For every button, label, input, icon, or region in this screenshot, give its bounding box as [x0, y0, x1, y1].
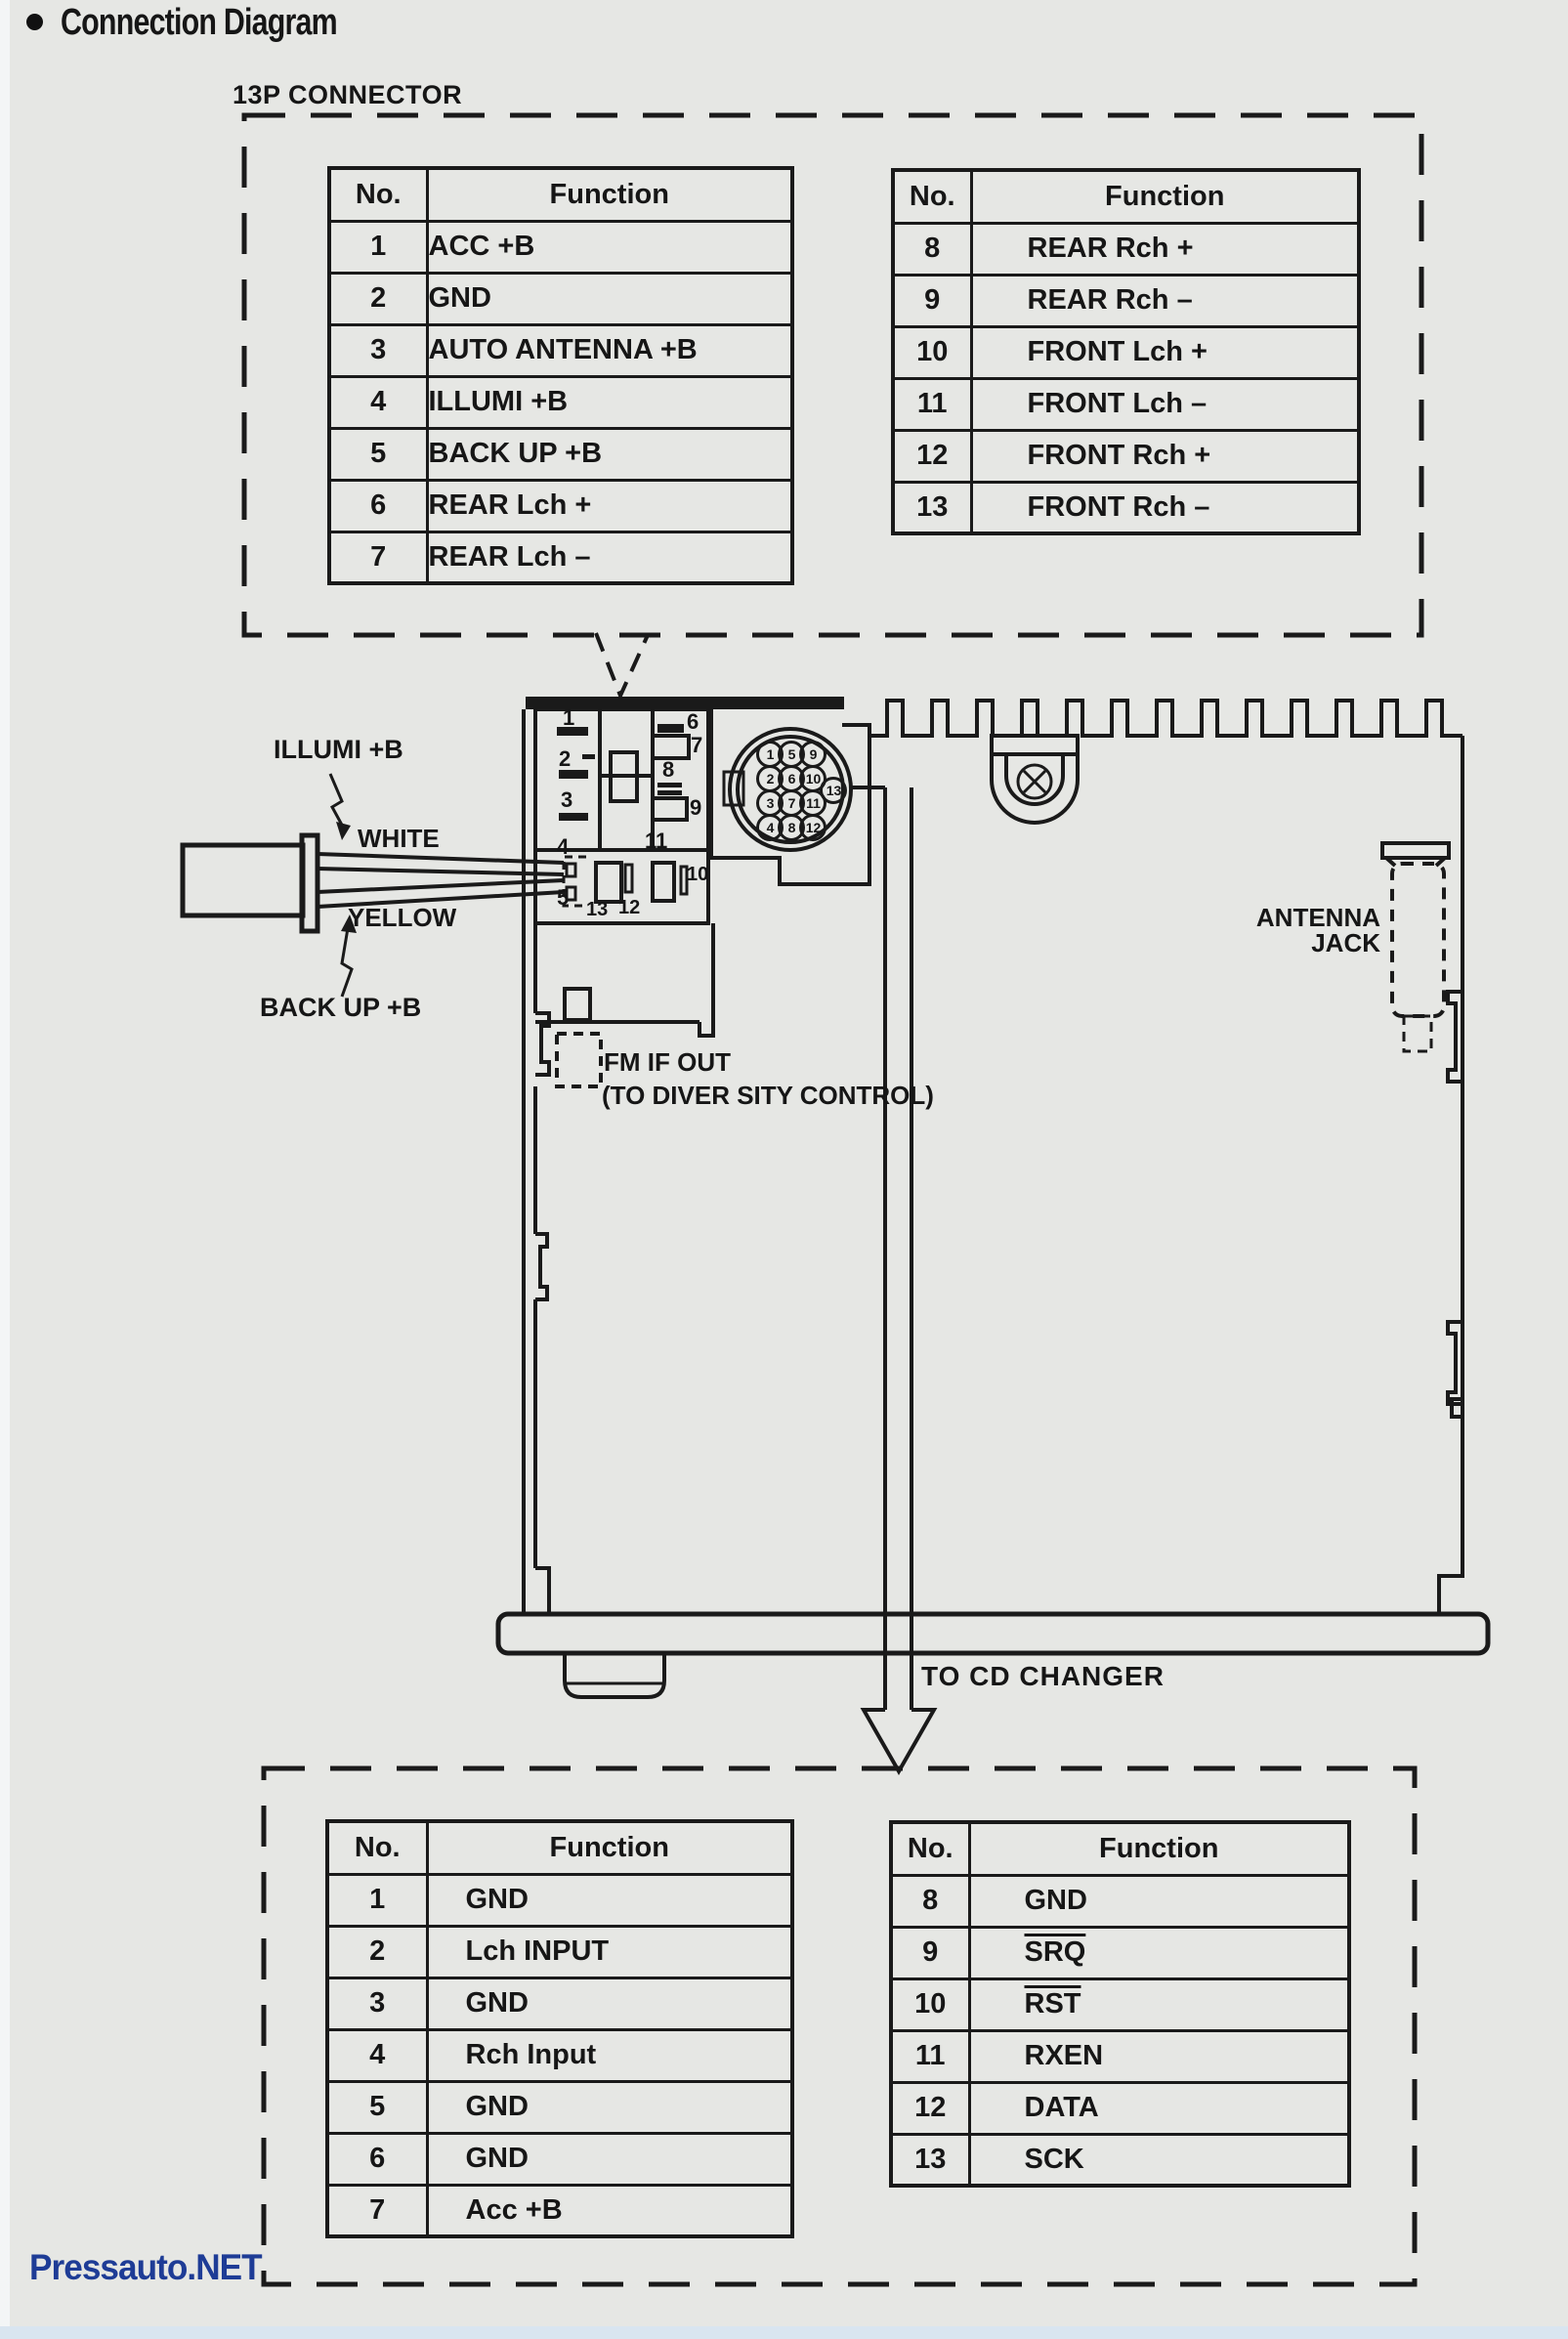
table-row: 11RXEN: [891, 2030, 1349, 2082]
col-header: No.: [329, 168, 427, 221]
table-row: 3AUTO ANTENNA +B: [329, 324, 792, 376]
sawtooth-edge: [869, 701, 1462, 736]
col-header: Function: [427, 1821, 792, 1874]
col-header: No.: [893, 170, 971, 223]
table-row: 9REAR Rch –: [893, 275, 1359, 326]
right-clip-1: [1448, 992, 1462, 1082]
table-row: 4Rch Input: [327, 2029, 792, 2081]
table-row: 5BACK UP +B: [329, 428, 792, 480]
scan-edge-bottom: [0, 2326, 1568, 2339]
white-wire-label: WHITE: [358, 824, 440, 854]
bottom-right-pin-table: No. Function 8GND 9SRQ 10RST 11RXEN 12DA…: [889, 1820, 1351, 2188]
table-row: 7REAR Lch –: [329, 532, 792, 583]
antenna-jack-dashed: [1392, 864, 1444, 1016]
left-clip-2: [535, 1234, 547, 1299]
table-row: 12DATA: [891, 2082, 1349, 2134]
table-row: 13SCK: [891, 2134, 1349, 2186]
illumi-label: ILLUMI +B: [274, 735, 403, 765]
table-row: 6REAR Lch +: [329, 480, 792, 532]
13p-connector-label: 13P CONNECTOR: [233, 80, 462, 110]
col-header: Function: [969, 1822, 1349, 1875]
block-pin-number: 2: [559, 746, 571, 772]
table-row: 1GND: [327, 1874, 792, 1926]
block-pin-number: 8: [662, 757, 674, 783]
table-row: 8GND: [891, 1875, 1349, 1927]
backup-label: BACK UP +B: [260, 993, 421, 1023]
table-row: 5GND: [327, 2081, 792, 2133]
block-pin-number: 3: [561, 787, 572, 813]
diversity-label: (TO DIVER SITY CONTROL): [602, 1081, 934, 1111]
yellow-wire-label: YELLOW: [348, 903, 456, 933]
col-header: No.: [327, 1821, 427, 1874]
table-row: 2GND: [329, 273, 792, 324]
fm-if-out-connector: [565, 989, 590, 1020]
col-header: Function: [971, 170, 1359, 223]
col-header: Function: [427, 168, 792, 221]
power-plug: [183, 845, 303, 915]
table-row: 12FRONT Rch +: [893, 430, 1359, 482]
fm-if-out-label: FM IF OUT: [604, 1047, 731, 1078]
block-pin-number: 11: [645, 829, 667, 854]
table-row: 2Lch INPUT: [327, 1926, 792, 1978]
table-row: 7Acc +B: [327, 2185, 792, 2236]
table-row: 3GND: [327, 1978, 792, 2029]
table-row: 11FRONT Lch –: [893, 378, 1359, 430]
right-clip-2: [1448, 1322, 1462, 1404]
table-row: 6GND: [327, 2133, 792, 2185]
backup-arrow: [342, 922, 352, 997]
unit-foot: [565, 1653, 664, 1697]
fm-if-out-dashed: [557, 1034, 601, 1086]
block-pin-number: 7: [691, 733, 702, 758]
antenna-jack-label: ANTENNA JACK: [1250, 905, 1380, 956]
table-row: 13FRONT Rch –: [893, 482, 1359, 533]
antenna-flange: [1382, 843, 1449, 858]
block-pin-number: 5: [557, 885, 569, 911]
block-pin-number: 4: [557, 834, 569, 860]
base-plate: [498, 1614, 1488, 1653]
din-pin-number: 12: [801, 816, 826, 840]
table-row: 8REAR Rch +: [893, 223, 1359, 275]
bottom-left-pin-table: No. Function 1GND 2Lch INPUT 3GND 4Rch I…: [325, 1819, 794, 2238]
table-row: 9SRQ: [891, 1927, 1349, 1978]
block-pin-number: 13: [586, 899, 608, 921]
title-bullet-icon: [26, 14, 43, 30]
block-pin-number: 1: [563, 705, 574, 731]
cd-changer-arrowhead: [864, 1710, 934, 1771]
block-pin-number: 6: [687, 709, 699, 735]
scan-edge-left: [0, 0, 10, 2339]
top-left-pin-table: No. Function 1ACC +B 2GND 3AUTO ANTENNA …: [327, 166, 794, 585]
illumi-arrow: [330, 774, 344, 829]
table-row: 10FRONT Lch +: [893, 326, 1359, 378]
table-row: 10RST: [891, 1978, 1349, 2030]
page-title: Connection Diagram: [61, 2, 337, 44]
block-pin-number: 12: [618, 897, 640, 919]
top-right-pin-table: No. Function 8REAR Rch + 9REAR Rch – 10F…: [891, 168, 1361, 535]
table-row: 4ILLUMI +B: [329, 376, 792, 428]
pointer-v: [596, 633, 648, 696]
block-pin-number: 9: [690, 795, 701, 821]
table-row: 1ACC +B: [329, 221, 792, 273]
col-header: No.: [891, 1822, 969, 1875]
din-pin-number: 9: [801, 743, 826, 767]
din-pin-number: 11: [801, 791, 826, 816]
block-pin-number: 10: [687, 864, 708, 886]
connection-diagram-page: Connection Diagram 13P CONNECTOR ILLUMI …: [0, 0, 1568, 2339]
watermark: Pressauto.NET: [29, 2247, 262, 2288]
to-cd-changer-label: TO CD CHANGER: [921, 1661, 1165, 1692]
